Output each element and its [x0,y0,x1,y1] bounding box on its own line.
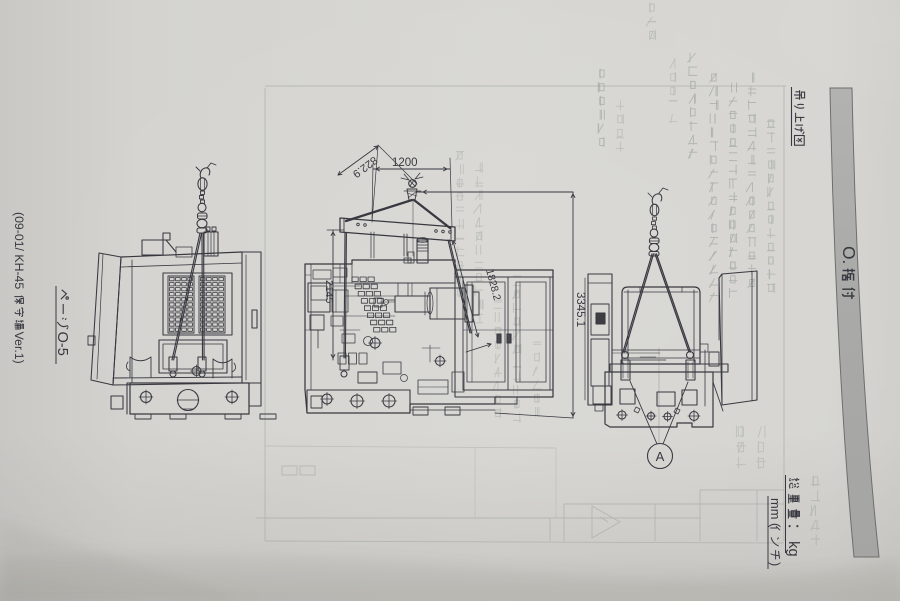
svg-text:2145: 2145 [323,280,335,304]
svg-text:O.: O. [839,246,859,264]
svg-text:3345.1: 3345.1 [574,292,586,327]
svg-text:mm (: mm ( [768,498,783,528]
svg-text:1200: 1200 [392,157,418,169]
svg-text:： kg: ： kg [785,523,801,557]
svg-text:(09-01/ KH-45: (09-01/ KH-45 [12,212,26,289]
svg-text:Ver.1): Ver.1) [12,332,26,364]
svg-text:): ) [768,562,783,566]
svg-text:A: A [656,449,665,464]
